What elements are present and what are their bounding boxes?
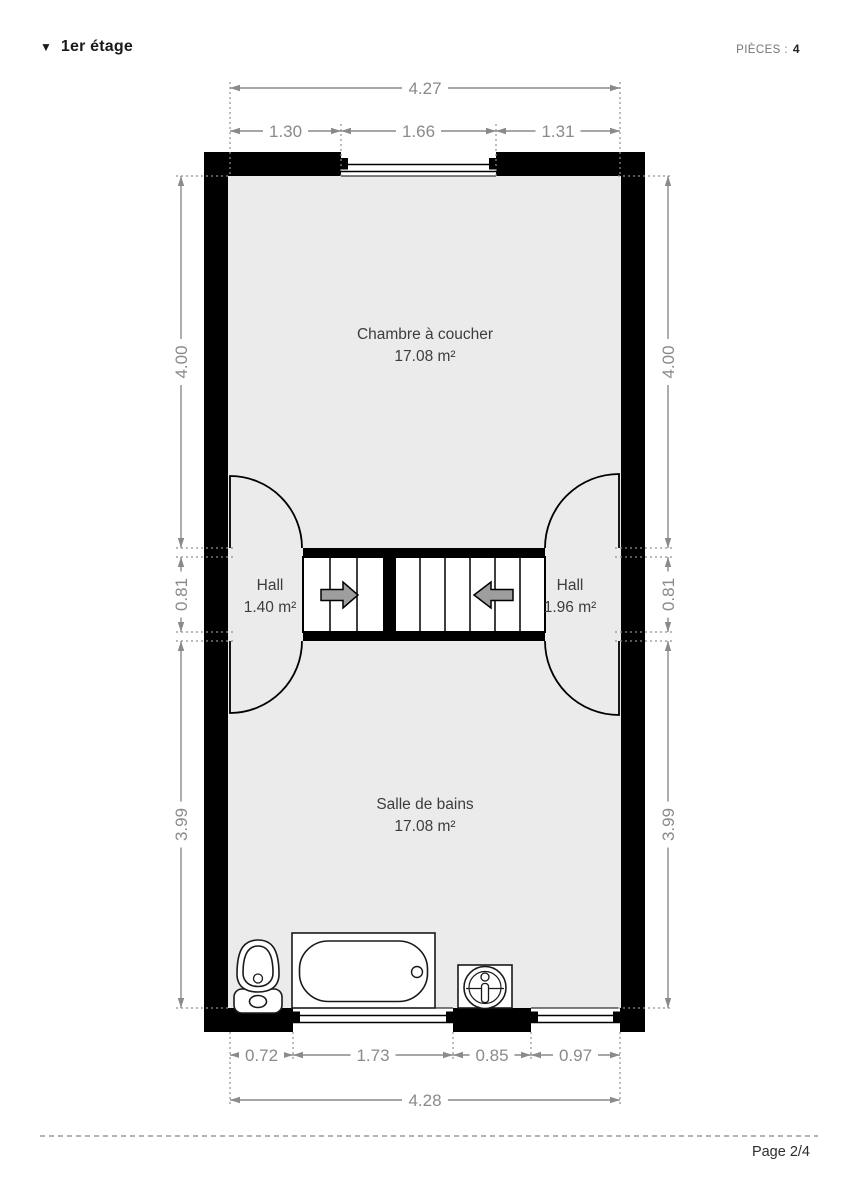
svg-text:3.99: 3.99 — [172, 808, 191, 841]
window-bottom-right — [531, 1008, 620, 1032]
bathtub-fixture — [292, 933, 435, 1008]
dim-label-right-seg3: 3.99 — [659, 802, 678, 848]
floor-plan-page: ▼ 1er étage PIÈCES : 4 — [0, 0, 848, 1200]
stairwell-wall-bottom — [303, 632, 545, 641]
dim-label-top-seg3: 1.31 — [536, 122, 581, 142]
window-bottom-left — [293, 1008, 453, 1032]
window-top — [341, 152, 496, 176]
svg-text:3.99: 3.99 — [659, 808, 678, 841]
svg-text:0.81: 0.81 — [659, 578, 678, 611]
sink-fixture — [458, 965, 512, 1009]
room-area-chambre: 17.08 m² — [394, 348, 455, 365]
toilet-fixture — [234, 940, 282, 1013]
dim-label-top-seg1: 1.30 — [263, 122, 308, 142]
stairwell-wall-top — [303, 548, 545, 557]
svg-text:4.27: 4.27 — [408, 79, 441, 98]
dim-label-bottom-seg4: 0.97 — [553, 1046, 598, 1066]
page-number: Page 2/4 — [752, 1144, 810, 1160]
room-name-salle-de-bains: Salle de bains — [376, 796, 474, 813]
dim-label-top-overall: 4.27 — [402, 79, 448, 99]
svg-text:4.00: 4.00 — [659, 345, 678, 378]
room-area-hall-left: 1.40 m² — [244, 599, 297, 616]
room-name-hall-right: Hall — [557, 577, 584, 594]
svg-text:0.97: 0.97 — [559, 1046, 592, 1065]
room-area-hall-right: 1.96 m² — [544, 599, 597, 616]
svg-text:0.72: 0.72 — [245, 1046, 278, 1065]
svg-text:1.66: 1.66 — [402, 122, 435, 141]
room-name-hall-left: Hall — [257, 577, 284, 594]
dim-label-top-seg2: 1.66 — [396, 122, 441, 142]
svg-text:1.30: 1.30 — [269, 122, 302, 141]
svg-text:4.28: 4.28 — [408, 1091, 441, 1110]
dim-label-right-seg2: 0.81 — [659, 572, 678, 618]
room-name-chambre: Chambre à coucher — [357, 326, 493, 343]
svg-text:1.31: 1.31 — [541, 122, 574, 141]
staircase — [303, 548, 545, 641]
svg-text:1.73: 1.73 — [356, 1046, 389, 1065]
svg-text:4.00: 4.00 — [172, 345, 191, 378]
dim-label-bottom-seg1: 0.72 — [239, 1046, 284, 1066]
dim-label-left-seg3: 3.99 — [172, 802, 191, 848]
room-area-salle-de-bains: 17.08 m² — [394, 818, 455, 835]
dim-label-bottom-seg2: 1.73 — [351, 1046, 396, 1066]
stair-divider — [384, 557, 395, 632]
svg-text:0.81: 0.81 — [172, 578, 191, 611]
floor-plan-drawing: Chambre à coucher 17.08 m² Hall 1.40 m² … — [0, 0, 848, 1200]
dim-label-left-seg1: 4.00 — [172, 339, 191, 385]
dim-label-left-seg2: 0.81 — [172, 572, 191, 618]
dim-label-bottom-seg3: 0.85 — [470, 1046, 515, 1066]
dim-label-right-seg1: 4.00 — [659, 339, 678, 385]
dim-label-bottom-overall: 4.28 — [402, 1091, 448, 1111]
svg-text:0.85: 0.85 — [475, 1046, 508, 1065]
